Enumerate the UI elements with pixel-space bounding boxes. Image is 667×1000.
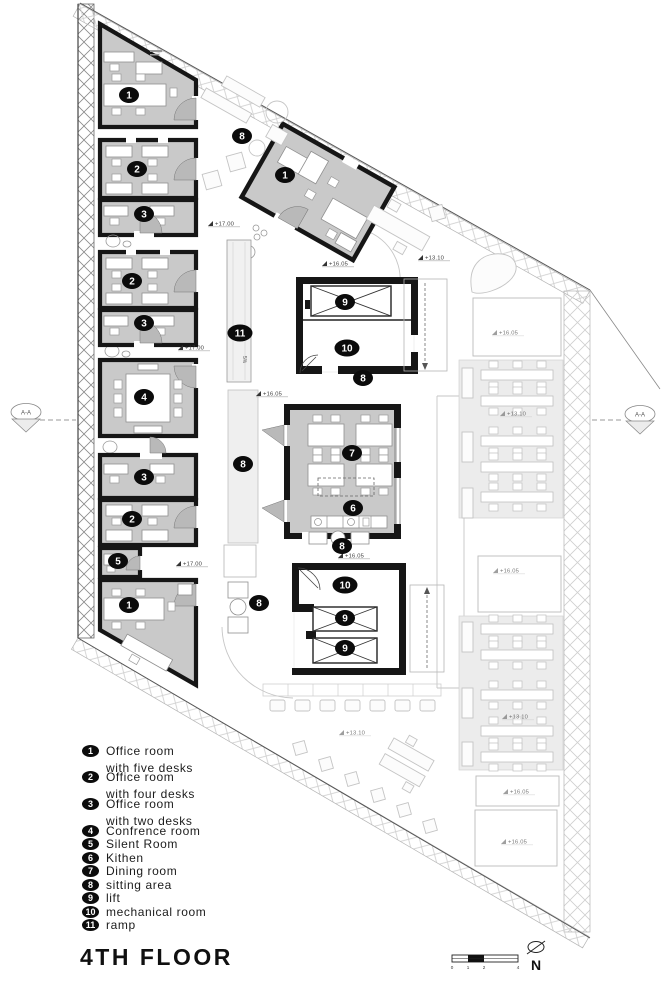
- svg-text:0: 0: [451, 965, 454, 970]
- angled-office-room-1: [240, 120, 397, 263]
- svg-text:10: 10: [341, 344, 353, 355]
- north-arrow: N: [527, 941, 545, 973]
- floor-title: 4TH FLOOR: [80, 944, 233, 971]
- svg-text:N: N: [531, 957, 541, 973]
- svg-text:8: 8: [256, 599, 262, 610]
- lift-block-top: [296, 277, 418, 374]
- legend-item-11: 11ramp: [82, 917, 136, 935]
- section-marker-right: A-A: [592, 406, 655, 435]
- svg-text:+13.10: +13.10: [425, 256, 444, 262]
- svg-text:4: 4: [517, 965, 520, 970]
- svg-text:A-A: A-A: [21, 411, 31, 417]
- room-number-badge: 5: [108, 553, 128, 569]
- svg-text:+13.10: +13.10: [507, 412, 526, 418]
- room-number-badge: 8: [332, 538, 352, 554]
- legend-badge: 11: [82, 919, 99, 931]
- room-number-badge: 6: [343, 500, 363, 516]
- level-label: +17.00: [178, 345, 210, 352]
- svg-text:+16.05: +16.05: [510, 790, 529, 796]
- svg-text:+16.05: +16.05: [499, 331, 518, 337]
- room-number-badge: 8: [232, 128, 252, 144]
- level-label: +13.10: [418, 255, 450, 262]
- svg-text:6: 6: [350, 504, 356, 515]
- svg-text:9: 9: [342, 644, 348, 655]
- right-ghost-column: [459, 254, 563, 866]
- svg-text:+16.05: +16.05: [263, 392, 282, 398]
- svg-text:+16.05: +16.05: [508, 840, 527, 846]
- svg-text:8: 8: [239, 132, 245, 143]
- legend-badge: 3: [82, 798, 99, 810]
- svg-text:2: 2: [134, 165, 140, 176]
- svg-text:1: 1: [126, 601, 132, 612]
- svg-text:9: 9: [342, 614, 348, 625]
- room-number-badge: 9: [335, 640, 355, 656]
- svg-text:A-A: A-A: [635, 413, 645, 419]
- svg-text:+13.10: +13.10: [346, 731, 365, 737]
- room-number-badge: 2: [122, 511, 142, 527]
- room-number-badge: 10: [333, 577, 358, 594]
- scale-bar: 0 1 2 4: [451, 955, 520, 970]
- svg-text:4: 4: [141, 393, 147, 404]
- section-marker-left: A-A: [11, 404, 76, 433]
- level-label: +17.00: [208, 221, 240, 228]
- svg-text:+17.00: +17.00: [215, 222, 234, 228]
- office-room-1-top: [100, 24, 201, 127]
- svg-text:2: 2: [483, 965, 486, 970]
- svg-text:+17.00: +17.00: [185, 346, 204, 352]
- room-number-badge: 4: [134, 389, 154, 405]
- svg-text:+13.10: +13.10: [509, 715, 528, 721]
- svg-text:8: 8: [240, 460, 246, 471]
- dining-kitchen-block: [262, 404, 401, 540]
- svg-text:8: 8: [339, 542, 345, 553]
- room-number-badge: 11: [228, 325, 253, 342]
- level-label: +17.00: [176, 561, 208, 568]
- office-room-2-c: [100, 500, 201, 545]
- sitting-area-left-of-lifts: [228, 582, 248, 633]
- room-number-badge: 3: [134, 206, 154, 222]
- legend-badge: 2: [82, 771, 99, 783]
- svg-text:+16.05: +16.05: [345, 554, 364, 560]
- level-label: +16.05: [322, 261, 354, 268]
- level-label: +16.05: [338, 553, 370, 560]
- ramp-slope-note: 5%: [241, 356, 247, 364]
- room-number-badge: 7: [342, 445, 362, 461]
- office-room-2-a: [100, 136, 201, 198]
- svg-text:5: 5: [115, 557, 121, 568]
- level-label: +16.05: [256, 391, 288, 398]
- svg-text:9: 9: [342, 298, 348, 309]
- room-number-badge: 9: [335, 610, 355, 626]
- svg-text:+16.05: +16.05: [329, 262, 348, 268]
- room-number-badge: 1: [275, 167, 295, 183]
- legend-badge: 1: [82, 745, 99, 757]
- svg-text:7: 7: [349, 449, 355, 460]
- stairs-bottom: [410, 585, 444, 672]
- room-number-badge: 8: [249, 595, 269, 611]
- svg-text:1: 1: [282, 171, 288, 182]
- office-room-3-c: [100, 437, 196, 498]
- corridor-sitting-strip: [224, 390, 258, 577]
- room-number-badge: 8: [353, 370, 373, 386]
- room-number-badge: 3: [134, 469, 154, 485]
- svg-text:+16.05: +16.05: [500, 569, 519, 575]
- room-number-badge: 1: [119, 87, 139, 103]
- room-number-badge: 3: [134, 315, 154, 331]
- room-number-badge: 2: [127, 161, 147, 177]
- room-number-badge: 8: [233, 456, 253, 472]
- svg-text:2: 2: [129, 277, 135, 288]
- svg-text:1: 1: [467, 965, 470, 970]
- room-number-badge: 2: [122, 273, 142, 289]
- level-label: +13.10: [339, 730, 371, 737]
- svg-text:3: 3: [141, 210, 147, 221]
- svg-text:2: 2: [129, 515, 135, 526]
- svg-text:+17.00: +17.00: [183, 562, 202, 568]
- svg-text:3: 3: [141, 473, 147, 484]
- room-number-badge: 1: [119, 597, 139, 613]
- svg-text:8: 8: [360, 374, 366, 385]
- svg-text:3: 3: [141, 319, 147, 330]
- svg-text:11: 11: [235, 329, 246, 340]
- svg-text:1: 1: [126, 91, 132, 102]
- room-number-badge: 9: [335, 294, 355, 310]
- office-room-2-b: [100, 248, 201, 308]
- ramp: 5%: [227, 240, 251, 382]
- room-number-badge: 10: [335, 340, 360, 357]
- svg-text:10: 10: [339, 581, 351, 592]
